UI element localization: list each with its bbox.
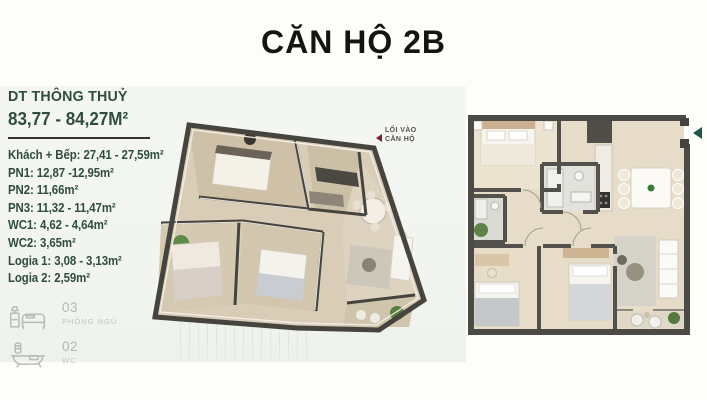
room-area-item: Logia 2: 2,59m²	[8, 269, 158, 287]
plan3d-dining-chair	[367, 191, 376, 200]
bedroom-count: 03	[62, 301, 117, 315]
wc-count: 02	[62, 340, 78, 354]
wc-count-text: 02 WC	[62, 340, 78, 365]
plan3d-balcony-chair	[356, 310, 366, 320]
plan2d-bed1-blanket	[481, 144, 535, 165]
plan2d-toilet	[491, 202, 499, 210]
room-area-item: Logia 1: 3,08 - 3,13m²	[8, 252, 158, 270]
plan2d-centerpiece	[648, 185, 655, 192]
net-area-heading: DT THÔNG THUỶ	[8, 88, 170, 105]
plan2d-storage-unit	[587, 119, 612, 143]
plan2d-bed2-blanket	[475, 298, 519, 326]
plan2d-shower	[475, 199, 487, 219]
wc-label: WC	[62, 356, 78, 365]
top-view-floorplan	[467, 114, 691, 336]
top-view-floorplan-art	[467, 114, 691, 336]
plan2d-nightstand	[544, 121, 553, 130]
isometric-floorplan-art	[147, 115, 439, 337]
bedroom-count-text: 03 PHÒNG NGỦ	[62, 301, 117, 326]
plan2d-wall-post	[680, 139, 689, 148]
plan2d-dining-chair	[673, 170, 684, 181]
divider	[8, 137, 150, 139]
bedroom-label: PHÒNG NGỦ	[62, 317, 117, 326]
entrance-label: LỐI VÀO CĂN HỘ	[385, 127, 417, 144]
plan2d-balcony-chair	[631, 314, 643, 326]
bathtub-icon	[8, 340, 48, 370]
plan3d-balcony-chair	[370, 313, 380, 323]
entrance-label-line1: LỐI VÀO	[385, 127, 417, 136]
plan2d-burner	[600, 202, 603, 205]
plan2d-sink	[571, 192, 591, 202]
entrance-callout: LỐI VÀO CĂN HỘ	[376, 127, 417, 144]
room-area-item: PN1: 12,87 -12,95m²	[8, 164, 158, 182]
plan3d-bed3-blanket	[173, 266, 223, 300]
plan2d-coffee-table	[626, 263, 644, 281]
plan2d-toilet	[575, 172, 584, 181]
plan2d-burner	[600, 195, 603, 198]
plan2d-plant	[474, 223, 488, 237]
plan2d-balcony-plant	[668, 312, 680, 324]
plan2d-stool	[488, 269, 497, 278]
arrow-left-icon	[376, 134, 382, 142]
isometric-floorplan: LỐI VÀO CĂN HỘ	[147, 115, 439, 337]
bed-icon	[8, 301, 48, 331]
plan2d-balcony-table	[644, 312, 650, 318]
room-area-item: Khách + Bếp: 27,41 - 27,59m²	[8, 146, 158, 164]
plan2d-burner	[605, 195, 608, 198]
plan2d-pillow	[487, 131, 505, 140]
plan2d-pillow	[573, 266, 607, 276]
plan2d-pillow	[479, 284, 515, 293]
room-area-item: WC1: 4,62 - 4,64m²	[8, 216, 158, 234]
plan2d-burner	[605, 202, 608, 205]
plan2d-bed3-blanket	[569, 284, 611, 320]
plan2d-dining-chair	[619, 184, 630, 195]
plan2d-vanity-desk	[475, 254, 509, 266]
plan2d-wardrobe	[563, 248, 609, 258]
entrance-arrow-left-icon	[693, 127, 702, 139]
page-title: CĂN HỘ 2B	[0, 24, 707, 61]
plan2d-side-table	[617, 255, 627, 265]
entrance-label-line2: CĂN HỘ	[385, 136, 417, 145]
plan3d-dining-chair	[371, 223, 380, 232]
plan2d-pillow	[509, 131, 527, 140]
plan2d-dining-chair	[619, 170, 630, 181]
plan2d-dining-chair	[619, 198, 630, 209]
plan2d-bed1-headboard	[481, 121, 535, 129]
wc-count-row: 02 WC	[8, 340, 178, 370]
plan2d-balcony-chair	[649, 316, 661, 328]
room-area-item: PN2: 11,66m²	[8, 181, 158, 199]
plan2d-dining-chair	[673, 198, 684, 209]
area-range: 83,77 - 84,27M²	[8, 108, 164, 130]
plan2d-dining-chair	[673, 184, 684, 195]
plan2d-nightstand	[473, 121, 482, 130]
plan2d-wall-post	[680, 118, 689, 126]
plan3d-coffee-table	[362, 258, 376, 272]
room-area-item: WC2: 3,65m²	[8, 234, 158, 252]
plan3d-dining-chair	[353, 201, 362, 210]
room-area-item: PN3: 11,32 - 11,47m²	[8, 199, 158, 217]
